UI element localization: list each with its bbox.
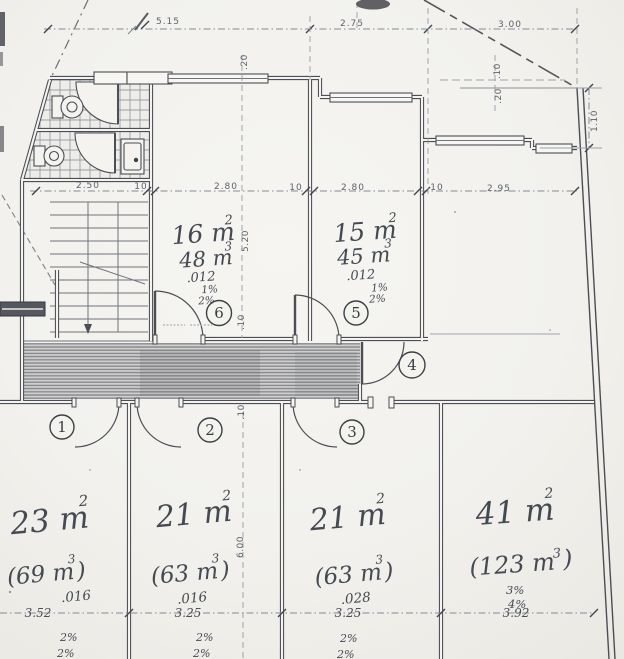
room41-volume-close: ) — [561, 544, 573, 573]
room3-door-jamb-2 — [335, 398, 339, 407]
paper-speck-4 — [549, 329, 551, 331]
pencil-tick-mark-2 — [128, 26, 136, 34]
room3-volume-close: ) — [382, 558, 394, 585]
room5-number: 5 — [351, 304, 361, 322]
dim-mid-250: 2.50 — [76, 181, 100, 191]
room1-area-label: 23 m — [8, 499, 91, 542]
bathroom-window-1 — [94, 72, 127, 84]
dim-wall-20-top: .20 — [240, 54, 250, 70]
room5-door-jamb-1 — [293, 335, 297, 344]
room2-volume-label: (63 m — [150, 558, 219, 590]
room2-coef-label: .016 — [176, 589, 208, 608]
room1-slope2-label: 2% — [56, 647, 74, 659]
dim-mid-10b: 10 — [289, 183, 302, 193]
property-line-left — [50, 0, 88, 80]
room6-window — [168, 74, 268, 83]
room2-door-jamb-2 — [179, 398, 183, 407]
hall4-number: 4 — [407, 356, 417, 374]
hall4-opening-jamb-2 — [389, 397, 394, 408]
hall4-opening-jamb-1 — [368, 397, 373, 408]
room41-volume-exp: 3 — [552, 546, 561, 562]
room3-slope2-label: 2% — [336, 648, 354, 659]
room1-door-arc — [75, 403, 119, 447]
wc-tank-lower — [34, 146, 45, 166]
sink-basin — [124, 143, 141, 170]
dim-offset-20: .20 — [494, 88, 504, 104]
staircase — [22, 202, 155, 341]
room5-volume-label: 45 m — [335, 242, 391, 270]
room6-number: 6 — [214, 304, 224, 322]
stair-break-line — [80, 262, 145, 284]
room6-door-jamb-2 — [201, 335, 205, 344]
dim-wall-10-room: .10 — [237, 314, 247, 330]
wc-bowl-upper-inner — [67, 102, 77, 112]
edge-mark-1 — [0, 12, 5, 46]
room1-volume-close: ) — [75, 558, 87, 585]
room2-labels: 21 m 2 (63 m 3 ) .016 — [144, 488, 241, 610]
room5-window — [330, 93, 412, 102]
room5-slope2-label: 2% — [368, 293, 386, 306]
room41-labels: 41 m 2 (123 m 3 ) — [464, 485, 573, 582]
dim-top-300: 3.00 — [498, 20, 522, 30]
room41-area-exp: 2 — [543, 486, 554, 503]
corridor-hatch-shade-1 — [140, 350, 260, 396]
dim-mid-295: 2.95 — [487, 184, 511, 194]
room2-area-label: 21 m — [153, 494, 233, 536]
room41-slope1-label: 3% — [506, 583, 524, 597]
room6-door-arc — [155, 291, 203, 339]
paper-speck-5 — [89, 469, 91, 471]
room5-area-exp: 2 — [387, 211, 397, 227]
dim-mid-280b: 2.80 — [341, 183, 365, 193]
room41-area-label: 41 m — [474, 492, 556, 533]
dim-offset-10: .10 — [493, 63, 503, 79]
room2-volume-close: ) — [219, 557, 231, 584]
room6-volume-exp: 3 — [224, 239, 233, 254]
dim-wall-10-corr: .10 — [237, 404, 247, 420]
sink-drain — [134, 158, 138, 162]
room2-door-arc — [137, 403, 181, 447]
room1-coef-label: .016 — [60, 588, 92, 607]
terrace-window — [436, 136, 524, 145]
room3-area-exp: 2 — [374, 491, 385, 508]
room2-number: 2 — [205, 421, 215, 439]
edge-mark-3 — [0, 126, 4, 152]
corridor — [22, 343, 360, 399]
wc-bowl-lower-inner — [50, 152, 59, 161]
dim-right-110: 1.10 — [590, 110, 600, 132]
edge-mark-2 — [0, 52, 3, 66]
corridor-hatch-shade-2 — [295, 352, 357, 396]
room3-coef-label: .028 — [340, 589, 372, 608]
room41-volume-label: (123 m — [468, 548, 555, 582]
dim-top-515: 5.15 — [156, 17, 180, 27]
dim-mid-10c: 10 — [430, 183, 443, 193]
paper-speck-2 — [454, 211, 456, 213]
dim-vert-600: 6.00 — [236, 536, 246, 558]
room6-door-jamb-1 — [153, 335, 157, 344]
room3-labels: 21 m 2 (63 m 3 ) .028 — [307, 491, 397, 611]
room3-door-arc — [293, 403, 337, 447]
room1-number: 1 — [57, 418, 67, 436]
room1-labels: 23 m 2 (69 m 3 ) .016 — [0, 491, 97, 610]
room1-slope1-label: 2% — [59, 631, 77, 644]
room2-slope2-label: 2% — [192, 647, 210, 659]
dim-bot-352: 3.52 — [25, 606, 52, 620]
room3-slope1-label: 2% — [339, 632, 357, 645]
room3-volume-label: (63 m — [314, 559, 383, 591]
room41-slope2-label: 4% — [507, 597, 526, 611]
room1-area-exp: 2 — [77, 491, 89, 510]
hall4-door-arc — [362, 342, 404, 384]
room1-door-jamb-2 — [117, 398, 121, 407]
property-line-lower-left — [2, 195, 55, 285]
paper-speck-1 — [9, 591, 11, 593]
room5-labels: 15 m 2 45 m 3 .012 1% 2% — [332, 211, 403, 308]
room5-door-arc — [295, 295, 339, 339]
room5-door-jamb-2 — [337, 335, 341, 344]
room1-volume-label: (69 m — [6, 559, 75, 591]
bathroom-window-2 — [127, 72, 172, 84]
room2-slope1-label: 2% — [195, 631, 213, 644]
floor-plan-canvas: 5.15 2.75 3.00 .20 .10 .20 1.10 2.50 10 … — [0, 0, 624, 659]
pencil-tick-mark — [135, 13, 148, 30]
dim-mid-280a: 2.80 — [214, 182, 238, 192]
room2-door-jamb-1 — [135, 398, 139, 407]
boundary-wall-right-inner — [583, 88, 615, 659]
room6-area-exp: 2 — [223, 213, 233, 229]
right-window — [536, 144, 572, 153]
room3-door-jamb-1 — [291, 398, 295, 407]
room5-volume-exp: 3 — [384, 236, 393, 251]
dim-bot-325b: 3.25 — [335, 606, 362, 620]
dim-top-275: 2.75 — [340, 19, 364, 29]
dim-mid-10a: 10 — [134, 182, 147, 192]
room1-door-jamb-1 — [72, 398, 76, 407]
boundary-wall-right-outer — [577, 88, 609, 659]
room3-area-label: 21 m — [307, 497, 387, 539]
dim-vert-520: 5.20 — [241, 230, 251, 252]
room6-labels: 16 m 2 48 m 3 .012 1% 2% — [170, 213, 240, 309]
stair-treads — [50, 202, 148, 332]
room3-number: 3 — [347, 423, 357, 441]
paper-speck-3 — [299, 469, 301, 471]
ink-smudge-top — [356, 0, 390, 10]
room2-area-exp: 2 — [221, 488, 232, 505]
dim-bot-325a: 3.25 — [175, 606, 202, 620]
